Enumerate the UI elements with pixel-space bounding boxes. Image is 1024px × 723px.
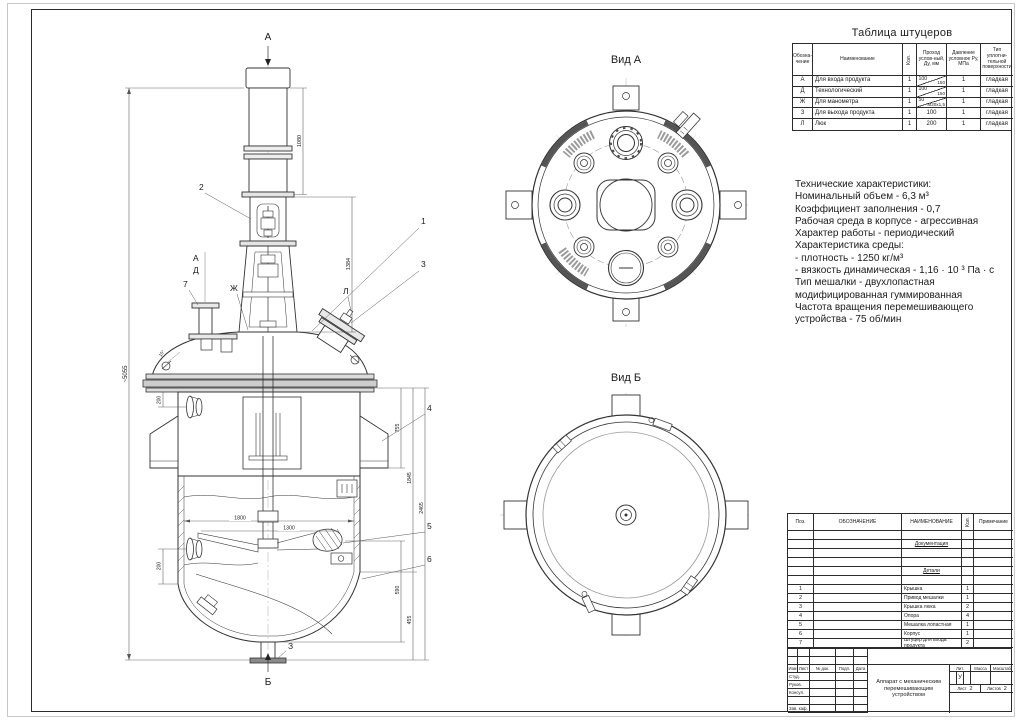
spec-cell-pos: 1: [788, 585, 814, 594]
spec-cell-note: [974, 594, 1013, 603]
spec-cell-qty: [962, 576, 974, 585]
spec-cell-pos: 5: [788, 621, 814, 630]
nozzle-cell-mark: Д: [793, 87, 813, 98]
tb-col-list: Лист: [798, 665, 810, 673]
spec-cell-note: [974, 558, 1013, 567]
nozzle-table-title: Таблица штуцеров: [792, 27, 1012, 43]
tb-sheet-label: Лист: [957, 686, 966, 691]
dim-1800: 1800: [234, 516, 246, 522]
tech-line: Характеристика среды:: [795, 240, 1017, 252]
spec-cell-pos: [788, 540, 814, 549]
tb-lit-sub: [964, 672, 971, 685]
nozzle-cell-name: Для манометра: [813, 98, 903, 109]
tb-empty: [788, 697, 810, 705]
spec-cell-qty: [962, 558, 974, 567]
title-block: ИзмЛист№ док.Подп.Дата Студ. Руков. Конс…: [787, 648, 1012, 712]
noz-z: З: [288, 641, 293, 651]
vessel-body: [150, 392, 388, 476]
spec-cell-pos: [788, 558, 814, 567]
spec-cell-name: Детали: [902, 567, 962, 576]
nozzle-cell-surf: гладкая: [981, 76, 1013, 87]
spec-cell-qty: 2: [962, 603, 974, 612]
spec-cell-designation: [814, 576, 902, 585]
view-a-top-nozzle: [610, 127, 643, 160]
tech-line: устройства - 75 об/мин: [795, 314, 1017, 326]
spec-cell-note: [974, 603, 1013, 612]
spec-cell-name: [902, 531, 962, 540]
tb-empty: [854, 705, 868, 713]
tech-line: Технические характеристики:: [795, 179, 1017, 191]
pos-7: 7: [183, 279, 188, 289]
dim-590: 590: [395, 586, 401, 595]
pos-2: 2: [199, 182, 204, 192]
drawing-sheet: А: [0, 0, 1024, 723]
tb-row-stud: Студ.: [788, 673, 810, 681]
nozzle-cell-p: 1: [947, 108, 981, 119]
tech-line: Тип мешалки - двухлопастная: [795, 277, 1017, 289]
tb-col-doc: № док.: [810, 665, 836, 673]
tb-sheet-num: 2: [970, 686, 973, 692]
spec-cell-name: Мешалка лопастная: [902, 621, 962, 630]
spec-cell-name: Корпус: [902, 630, 962, 639]
spec-cell-qty: 1: [962, 594, 974, 603]
nozzle-cell-p: 1: [947, 76, 981, 87]
spec-cell-qty: [962, 540, 974, 549]
motor: [242, 68, 294, 197]
dim-455: 455: [407, 616, 413, 625]
tech-line: - вязкость динамическая - 1,16 · 10 ³ Па…: [795, 265, 1017, 277]
spec-cell-designation: [814, 639, 902, 648]
spec-cell-qty: [962, 549, 974, 558]
spec-cell-name: [902, 549, 962, 558]
nozzle-cell-mark: З: [793, 108, 813, 119]
spec-cell-designation: [814, 585, 902, 594]
tb-sheets-num: 2: [1004, 686, 1007, 692]
nozzle-col-qty: Кол.: [903, 44, 917, 76]
pos-3: 3: [421, 259, 426, 269]
spec-cell-qty: 1: [962, 621, 974, 630]
spec-col-note: Примечание: [974, 514, 1013, 531]
spec-cell-pos: 7: [788, 639, 814, 648]
tech-line: Частота вращения перемешивающего: [795, 302, 1017, 314]
spec-cell-note: [974, 612, 1013, 621]
tb-empty: [836, 657, 854, 665]
spec-cell-designation: [814, 612, 902, 621]
tb-empty: [854, 697, 868, 705]
spec-cell-note: [974, 549, 1013, 558]
tb-col-data: Дата: [854, 665, 868, 673]
tb-empty: [798, 657, 810, 665]
nozzle-cell-name: Для выхода продукта: [813, 108, 903, 119]
spec-cell-note: [974, 567, 1013, 576]
pos-5: 5: [427, 521, 432, 531]
tech-line: Рабочая среда в корпусе - агрессивная: [795, 216, 1017, 228]
tb-scale-label: Масштаб: [991, 665, 1013, 672]
nozzle-cell-surf: гладкая: [981, 119, 1013, 130]
dim-motor: 1080: [297, 135, 303, 147]
tb-empty: [854, 673, 868, 681]
spec-col-name: НАИМЕНОВАНИЕ: [902, 514, 962, 531]
spec-cell-qty: [962, 531, 974, 540]
spec-cell-designation: [814, 549, 902, 558]
spec-cell-name: Документация: [902, 540, 962, 549]
nozzle-col-name: Наименование: [813, 44, 903, 76]
front-view: А: [123, 32, 432, 688]
dim-lantern: 1384: [346, 258, 352, 270]
nozzle-cell-dn: 100: [917, 108, 947, 119]
spec-cell-pos: 2: [788, 594, 814, 603]
spec-col-qty: Кол.: [962, 514, 974, 531]
spec-cell-qty: 1: [962, 630, 974, 639]
tb-empty: [798, 649, 810, 657]
view-arrow-a-label: А: [265, 32, 272, 43]
noz-l: Л: [343, 286, 349, 296]
spec-cell-designation: [814, 531, 902, 540]
tb-empty: [810, 697, 836, 705]
nozzle-cell-mark: Л: [793, 119, 813, 130]
tb-empty: [836, 649, 854, 657]
spec-cell-note: [974, 630, 1013, 639]
spec-cell-note: [974, 639, 1013, 648]
tb-row-rukov: Руков.: [788, 681, 810, 689]
view-b: Вид Б: [500, 372, 752, 639]
tb-empty: [854, 657, 868, 665]
tb-document-title: Аппарат с механическим перемешивающим ус…: [868, 665, 950, 713]
nozzle-cell-surf: гладкая: [981, 108, 1013, 119]
spec-cell-qty: 1: [962, 585, 974, 594]
noz-d: Д: [193, 265, 199, 275]
spec-cell-designation: [814, 540, 902, 549]
tech-line: модифицированная гуммированная: [795, 290, 1017, 302]
tb-empty: [836, 681, 854, 689]
bottom-head: [178, 572, 360, 663]
tb-empty: [854, 681, 868, 689]
spec-table: Поз. ОБОЗНАЧЕНИЕ НАИМЕНОВАНИЕ Кол. Приме…: [787, 513, 1012, 649]
tb-empty: [810, 681, 836, 689]
spec-cell-qty: [962, 567, 974, 576]
tb-empty: [854, 649, 868, 657]
spec-cell-note: [974, 621, 1013, 630]
spec-cell-qty: 4: [962, 612, 974, 621]
spec-cell-qty: 2: [962, 639, 974, 648]
nozzle-cell-qty: 1: [903, 87, 917, 98]
nozzle-col-p: Давление условное Ру, МПа: [947, 44, 981, 76]
spec-cell-name: [902, 558, 962, 567]
tb-empty: [810, 689, 836, 697]
nozzle-cell-qty: 1: [903, 76, 917, 87]
tb-mass-label: Масса: [971, 665, 991, 672]
nozzle-cell-dn: 50М20х1,5: [917, 98, 947, 109]
tb-empty: [854, 689, 868, 697]
nozzle-cell-name: Технологический: [813, 87, 903, 98]
spec-cell-pos: [788, 576, 814, 585]
tb-lit-sub: [950, 672, 957, 685]
tb-empty: [836, 697, 854, 705]
nozzle-cell-dn: 100150: [917, 76, 947, 87]
tech-line: - плотность - 1250 кг/м³: [795, 253, 1017, 265]
nozzle-cell-name: Для входа продукта: [813, 76, 903, 87]
tb-empty: [810, 673, 836, 681]
tb-mass-value: [971, 672, 991, 685]
nozzle-cell-mark: Ж: [793, 98, 813, 109]
dim-1300: 1300: [283, 526, 295, 532]
spec-cell-designation: [814, 630, 902, 639]
nozzle-cell-qty: 1: [903, 98, 917, 109]
spec-cell-name: Привод мешалки: [902, 594, 962, 603]
pos-4: 4: [427, 403, 432, 413]
tb-sheets-cell: Листов2: [981, 685, 1013, 693]
dim-2465: 2465: [419, 502, 425, 514]
dim-total: ~5055: [123, 365, 129, 383]
tech-line: Номинальный объем - 6,3 м³: [795, 191, 1017, 203]
tb-empty: [836, 705, 854, 713]
view-a-title: Вид А: [611, 54, 642, 66]
spec-cell-name: Штуцер для входа продукта: [902, 639, 962, 648]
nozzle-cell-qty: 1: [903, 108, 917, 119]
view-arrow-b-label: Б: [265, 677, 272, 688]
nozzle-table-grid: Обозна-чение Наименование Кол. Проход ус…: [792, 43, 1012, 131]
view-a-bottom-nozzle: [609, 251, 644, 286]
noz-a: А: [193, 253, 199, 263]
nozzle-cell-qty: 1: [903, 119, 917, 130]
spec-cell-name: Опора: [902, 612, 962, 621]
nozzle-cell-p: 1: [947, 87, 981, 98]
tb-col-podp: Подп.: [836, 665, 854, 673]
spec-cell-name: Крышка люка: [902, 603, 962, 612]
nozzle-cell-surf: гладкая: [981, 87, 1013, 98]
nozzle-cell-dn: 100150: [917, 87, 947, 98]
nozzle-col-dn: Проход услов-ный, Ду, мм: [917, 44, 947, 76]
spec-cell-designation: [814, 567, 902, 576]
noz-zh: Ж: [230, 283, 238, 293]
spec-cell-designation: [814, 558, 902, 567]
tb-empty: [836, 689, 854, 697]
title-block-signatures: ИзмЛист№ док.Подп.Дата Студ. Руков. Конс…: [788, 649, 868, 713]
spec-cell-note: [974, 585, 1013, 594]
view-a: Вид А: [506, 54, 748, 330]
flange-joint: [143, 374, 377, 392]
pos-1: 1: [421, 216, 426, 226]
tb-empty: [810, 705, 836, 713]
tb-empty: [836, 673, 854, 681]
tech-line: Коэффициент заполнения - 0,7: [795, 204, 1017, 216]
spec-cell-pos: [788, 567, 814, 576]
tb-empty: [788, 649, 798, 657]
spec-cell-designation: [814, 621, 902, 630]
nozzle-cell-p: 1: [947, 119, 981, 130]
tb-right-grid: Лит. Масса Масштаб У Лист2 Листов2: [950, 665, 1013, 713]
tb-designation-cell: [868, 649, 1013, 665]
spec-cell-pos: 6: [788, 630, 814, 639]
pos-6: 6: [427, 554, 432, 564]
tb-empty: [810, 649, 836, 657]
spec-cell-pos: [788, 531, 814, 540]
spec-cell-note: [974, 576, 1013, 585]
tb-sheets-label: Листов: [987, 686, 1001, 691]
tech-line: Характер работы - периодический: [795, 228, 1017, 240]
nozzle-cell-dn: 200: [917, 119, 947, 130]
nozzle-col-mark: Обозна-чение: [793, 44, 813, 76]
tb-row-zav: Зав. каф.: [788, 705, 810, 713]
spec-cell-note: [974, 540, 1013, 549]
dim-200-upper: 200: [157, 396, 163, 405]
spec-cell-pos: 4: [788, 612, 814, 621]
nozzle-cell-name: Люк: [813, 119, 903, 130]
tech-characteristics: Технические характеристики: Номинальный …: [795, 179, 1017, 327]
spec-cell-pos: 3: [788, 603, 814, 612]
tb-row-konsul: Консул.: [788, 689, 810, 697]
view-b-title: Вид Б: [611, 372, 641, 384]
nozzle-cell-p: 1: [947, 98, 981, 109]
tb-lit-value: У: [957, 672, 964, 685]
dim-200-lower: 200: [157, 562, 163, 571]
tb-org-cell: [950, 693, 1013, 713]
nozzle-table: Таблица штуцеров Обозна-чение Наименован…: [792, 27, 1012, 131]
nozzle-col-surf: Тип уплотни- тельной поверхности: [981, 44, 1013, 76]
nozzle-cell-mark: А: [793, 76, 813, 87]
spec-cell-pos: [788, 549, 814, 558]
spec-cell-name: Крышка: [902, 585, 962, 594]
spec-cell-name: [902, 576, 962, 585]
tb-empty: [810, 657, 836, 665]
nozzle-cell-surf: гладкая: [981, 98, 1013, 109]
tb-lit-label: Лит.: [950, 665, 971, 672]
tb-empty: [788, 657, 798, 665]
tb-scale-value: [991, 672, 1013, 685]
spec-col-pos: Поз.: [788, 514, 814, 531]
spec-cell-designation: [814, 594, 902, 603]
tb-sheet-cell: Лист2: [950, 685, 981, 693]
spec-col-designation: ОБОЗНАЧЕНИЕ: [814, 514, 902, 531]
spec-cell-designation: [814, 603, 902, 612]
tb-col-izm: Изм: [788, 665, 798, 673]
spec-cell-note: [974, 531, 1013, 540]
dim-1845: 1845: [407, 472, 413, 484]
